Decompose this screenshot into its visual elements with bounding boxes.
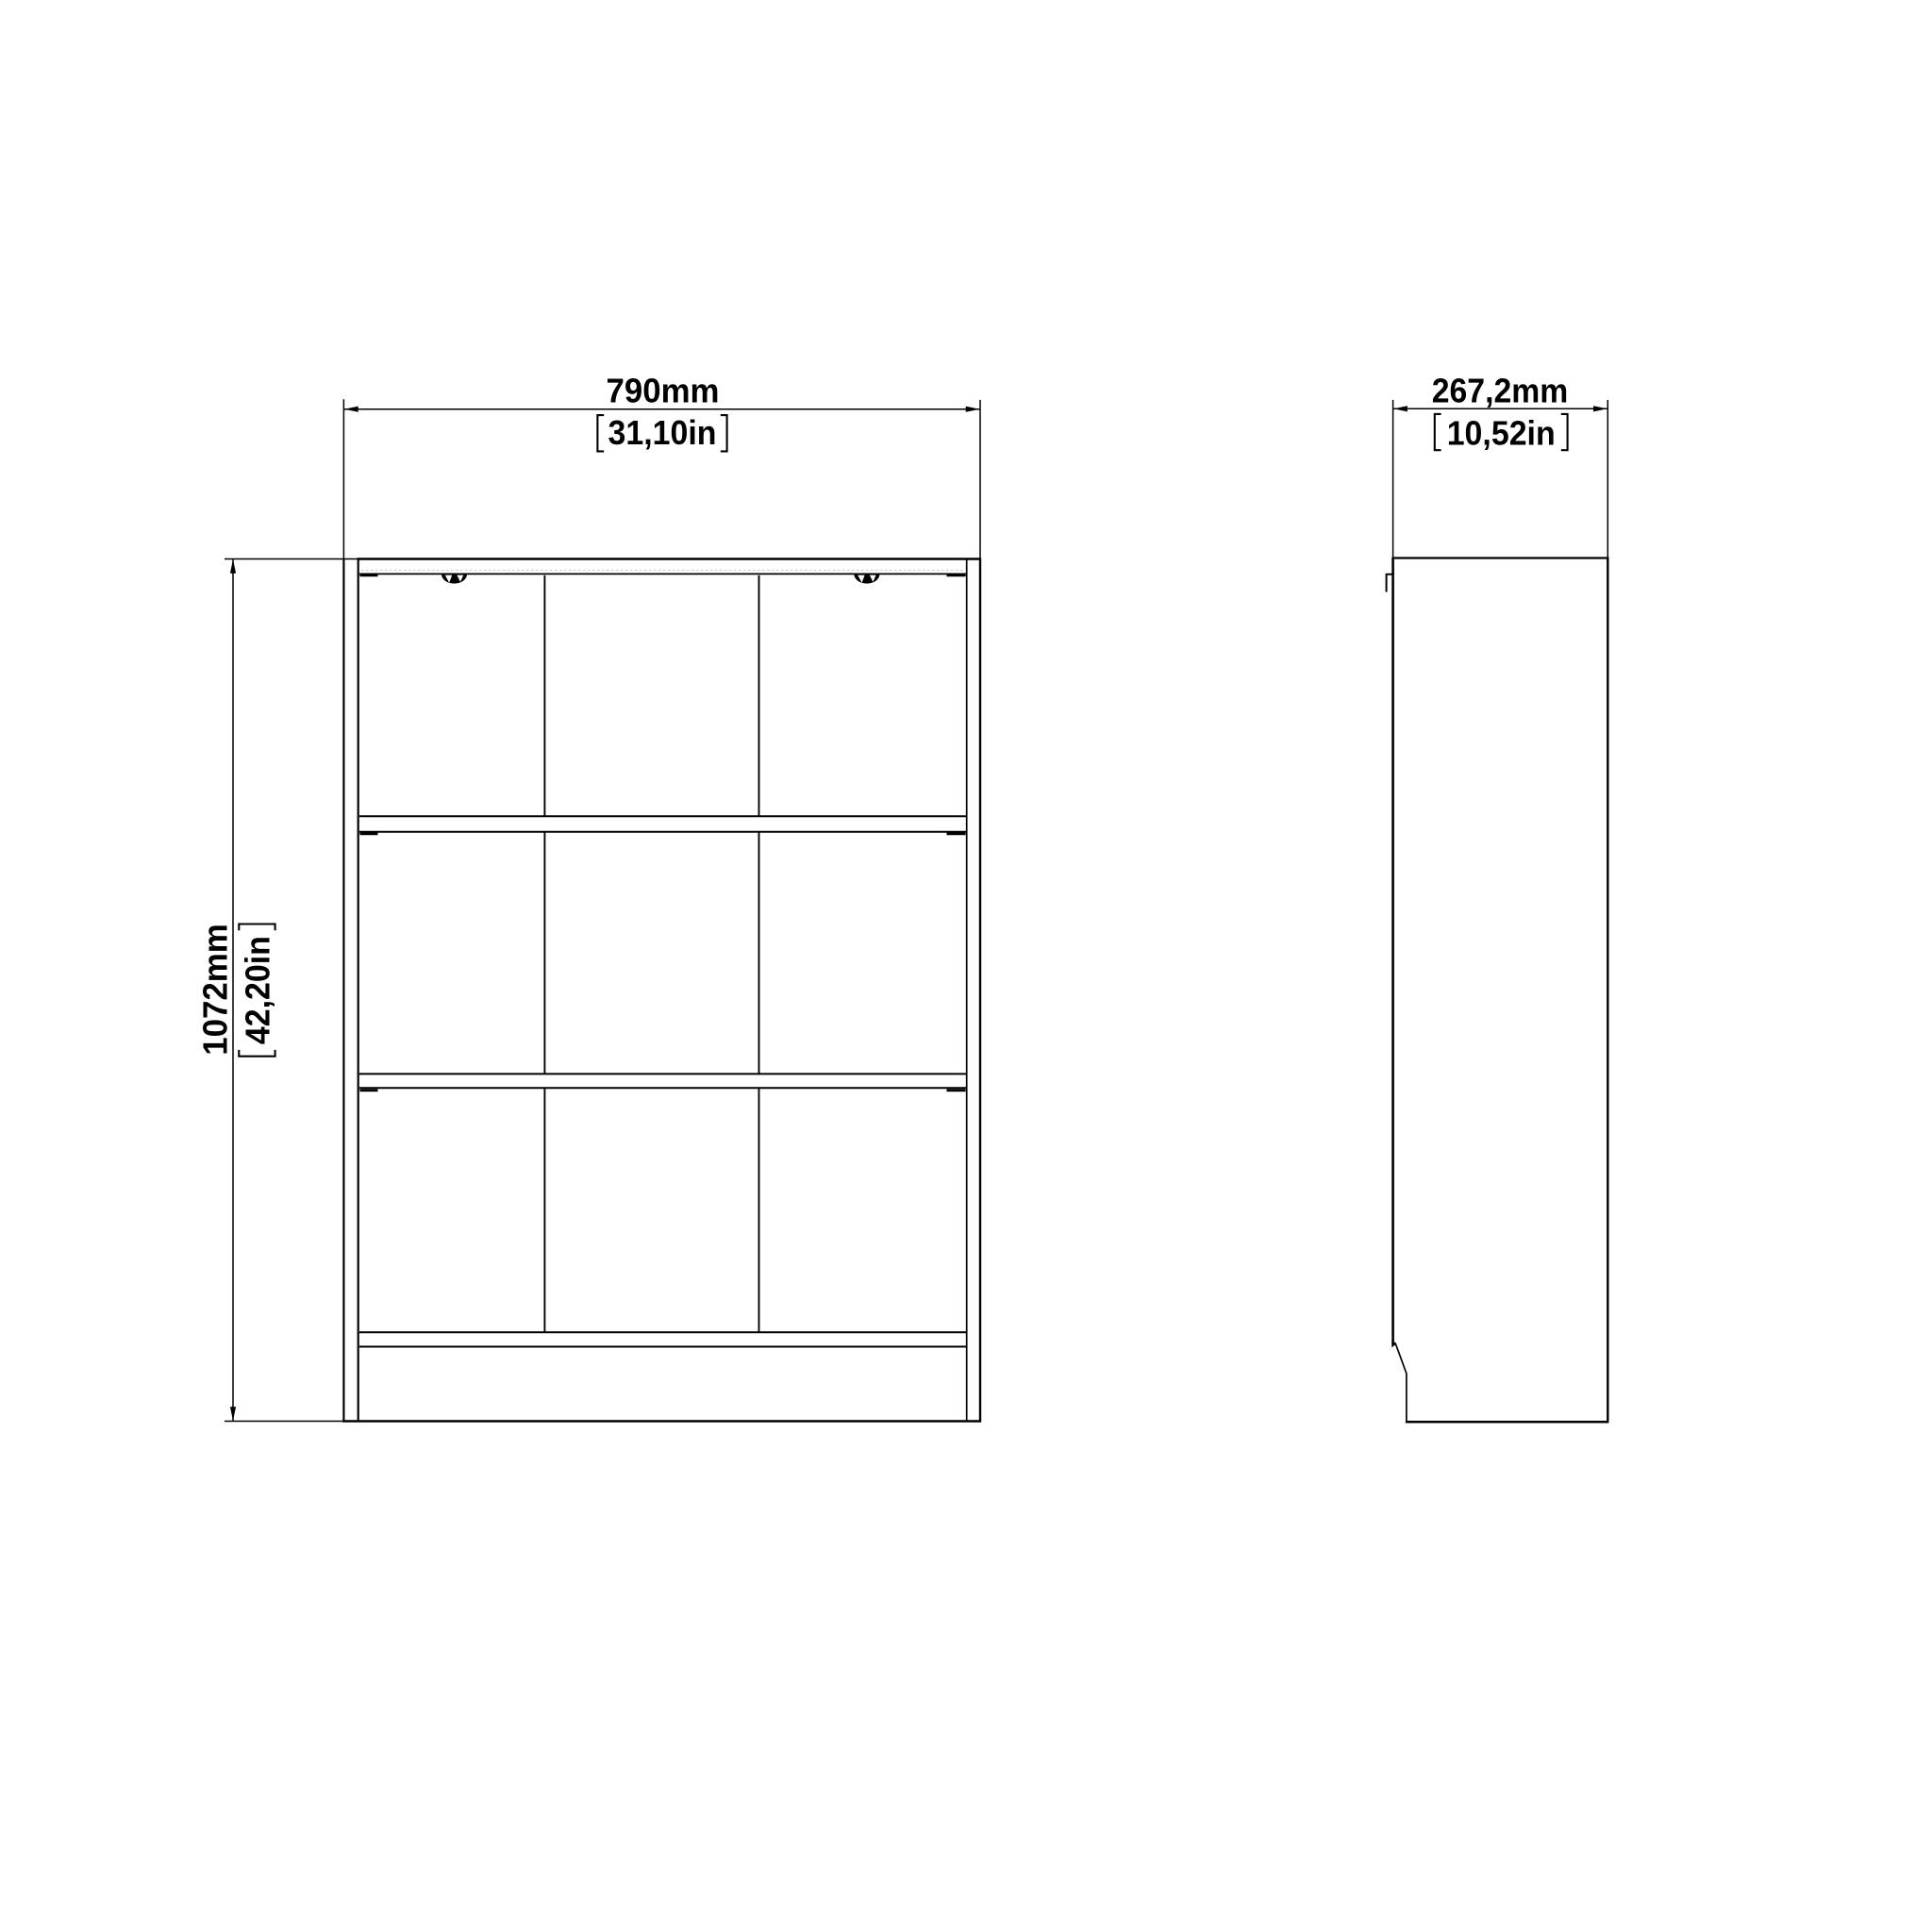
svg-text:31,10in: 31,10in — [608, 413, 717, 452]
svg-text:267,2mm: 267,2mm — [1432, 372, 1569, 410]
svg-text:42,20in: 42,20in — [239, 936, 277, 1044]
svg-text:10,52in: 10,52in — [1447, 413, 1556, 452]
svg-text:790mm: 790mm — [607, 372, 720, 410]
svg-text:1072mm: 1072mm — [195, 924, 234, 1056]
